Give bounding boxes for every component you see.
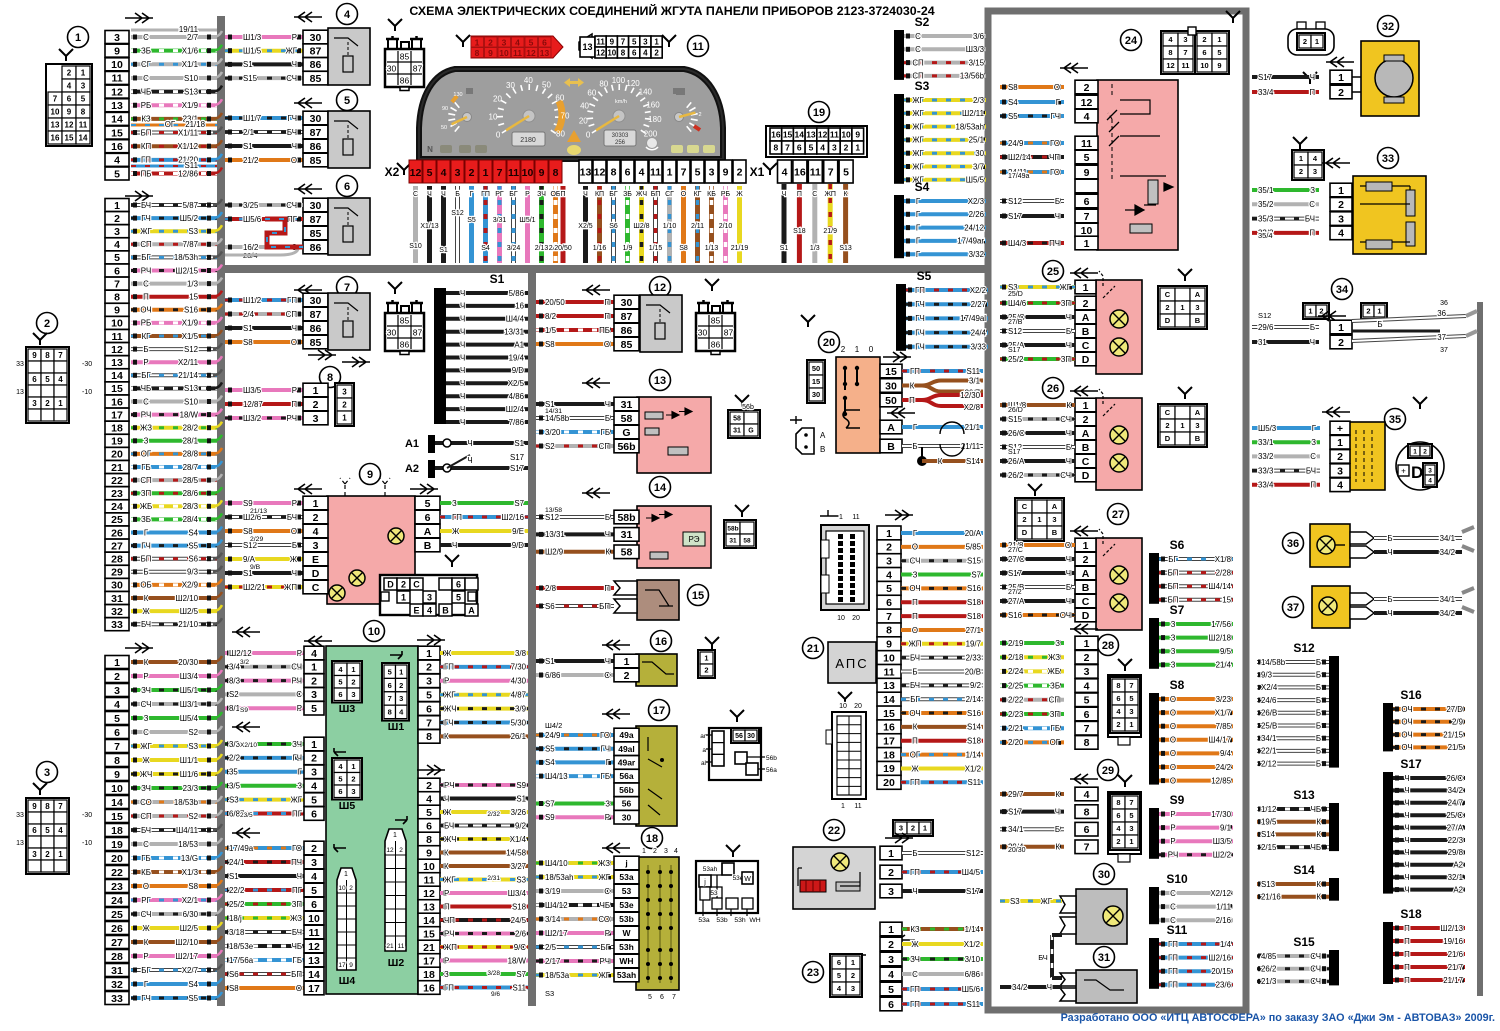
svg-text:ГБ: ГБ bbox=[1051, 724, 1060, 733]
svg-text:ЖЧ: ЖЧ bbox=[444, 704, 457, 713]
svg-text:53: 53 bbox=[710, 890, 718, 897]
svg-text:ЖГ: ЖГ bbox=[140, 742, 152, 751]
svg-text:С: С bbox=[915, 45, 921, 54]
svg-text:ЖБ: ЖБ bbox=[1048, 667, 1060, 676]
svg-text:РЧ: РЧ bbox=[291, 676, 302, 685]
svg-text:34/1: 34/1 bbox=[1261, 734, 1276, 743]
svg-text:ЖГ: ЖГ bbox=[912, 109, 924, 118]
svg-text:S13: S13 bbox=[839, 245, 852, 252]
svg-text:8: 8 bbox=[621, 48, 626, 57]
svg-text:6/86: 6/86 bbox=[965, 970, 981, 979]
svg-text:З: З bbox=[1171, 661, 1176, 670]
svg-text:S8: S8 bbox=[679, 245, 688, 252]
svg-text:2: 2 bbox=[737, 166, 743, 178]
svg-text:БЧ: БЧ bbox=[292, 928, 302, 937]
svg-text:9/D: 9/D bbox=[512, 541, 525, 550]
svg-text:БГ: БГ bbox=[141, 253, 151, 262]
svg-text:X1/7: X1/7 bbox=[1215, 708, 1231, 717]
svg-text:S16: S16 bbox=[967, 584, 982, 593]
svg-text:25/1: 25/1 bbox=[969, 136, 984, 145]
svg-text:D: D bbox=[1165, 434, 1171, 443]
svg-text:1: 1 bbox=[401, 593, 406, 603]
svg-text:21/15: 21/15 bbox=[1443, 730, 1463, 739]
svg-text:СП: СП bbox=[1049, 696, 1061, 705]
svg-text:S8: S8 bbox=[1170, 678, 1185, 692]
svg-text:17/30: 17/30 bbox=[1211, 810, 1231, 819]
svg-text:S11: S11 bbox=[967, 367, 980, 376]
svg-text:1: 1 bbox=[313, 385, 319, 397]
svg-text:58b: 58b bbox=[727, 525, 738, 532]
svg-text:2: 2 bbox=[1165, 303, 1169, 312]
svg-text:49al: 49al bbox=[618, 744, 635, 754]
svg-text:1: 1 bbox=[704, 654, 708, 663]
svg-text:2: 2 bbox=[45, 850, 50, 859]
svg-text:ГП: ГП bbox=[910, 367, 920, 376]
svg-text:КЗ: КЗ bbox=[910, 925, 920, 934]
svg-text:ОЧ: ОЧ bbox=[1401, 730, 1412, 739]
svg-text:D: D bbox=[1022, 528, 1028, 537]
svg-text:2: 2 bbox=[1084, 652, 1090, 664]
svg-text:S9: S9 bbox=[240, 707, 248, 714]
svg-text:S17: S17 bbox=[1008, 347, 1021, 354]
svg-text:15: 15 bbox=[189, 293, 198, 302]
svg-text:Ш3/4: Ш3/4 bbox=[508, 889, 527, 898]
svg-text:4/30: 4/30 bbox=[511, 677, 527, 686]
svg-text:1: 1 bbox=[654, 37, 659, 46]
svg-text:3/19: 3/19 bbox=[545, 887, 561, 896]
svg-text:1: 1 bbox=[1315, 37, 1319, 46]
svg-text:ГЧ: ГЧ bbox=[915, 328, 925, 337]
svg-text:3/18: 3/18 bbox=[229, 928, 245, 937]
svg-text:Ш4/11: Ш4/11 bbox=[176, 826, 198, 835]
svg-text:С: С bbox=[604, 887, 610, 896]
svg-text:Б: Б bbox=[605, 414, 610, 423]
svg-text:140: 140 bbox=[639, 87, 653, 96]
svg-text:-30: -30 bbox=[82, 361, 92, 368]
svg-text:20/50: 20/50 bbox=[554, 245, 572, 252]
svg-text:7: 7 bbox=[1084, 211, 1090, 223]
svg-text:11: 11 bbox=[596, 37, 605, 46]
svg-text:5: 5 bbox=[809, 143, 814, 153]
svg-text:8/2: 8/2 bbox=[545, 312, 556, 321]
svg-text:4: 4 bbox=[1084, 789, 1090, 801]
svg-text:2: 2 bbox=[1116, 837, 1120, 846]
svg-text:6: 6 bbox=[425, 512, 431, 524]
svg-text:8: 8 bbox=[1168, 48, 1172, 57]
svg-text:ГП: ГП bbox=[444, 663, 454, 672]
svg-text:Ч: Ч bbox=[583, 191, 588, 198]
svg-text:D: D bbox=[312, 568, 320, 580]
svg-text:5: 5 bbox=[338, 774, 342, 783]
svg-text:53h: 53h bbox=[619, 942, 634, 952]
svg-text:30: 30 bbox=[885, 380, 897, 392]
svg-text:-10: -10 bbox=[82, 840, 92, 847]
svg-text:13: 13 bbox=[423, 901, 435, 913]
svg-text:X1/9: X1/9 bbox=[182, 319, 199, 328]
svg-text:-10: -10 bbox=[82, 389, 92, 396]
svg-text:S14: S14 bbox=[966, 457, 981, 466]
svg-text:2: 2 bbox=[1423, 448, 1427, 455]
svg-text:3: 3 bbox=[1195, 421, 1199, 430]
svg-text:29/8: 29/8 bbox=[1448, 848, 1464, 857]
svg-text:5: 5 bbox=[632, 37, 637, 46]
svg-text:10: 10 bbox=[837, 615, 845, 622]
svg-text:З: З bbox=[1171, 647, 1176, 656]
svg-text:2: 2 bbox=[469, 167, 475, 179]
svg-text:ГБ: ГБ bbox=[601, 428, 610, 437]
svg-text:П: П bbox=[1404, 937, 1410, 946]
svg-text:СП: СП bbox=[912, 58, 924, 67]
svg-text:О: О bbox=[1170, 708, 1176, 717]
svg-text:S6: S6 bbox=[609, 223, 618, 230]
svg-text:S12: S12 bbox=[451, 210, 464, 217]
svg-text:49ar: 49ar bbox=[618, 757, 636, 767]
svg-text:3/24: 3/24 bbox=[507, 245, 521, 252]
svg-text:23/6: 23/6 bbox=[1216, 981, 1232, 990]
svg-text:al: al bbox=[701, 760, 707, 767]
svg-text:К: К bbox=[910, 381, 915, 390]
svg-text:23/5: 23/5 bbox=[240, 812, 253, 819]
svg-text:15: 15 bbox=[111, 811, 123, 823]
svg-text:О: О bbox=[1170, 763, 1176, 772]
svg-text:15: 15 bbox=[692, 590, 704, 602]
svg-text:2: 2 bbox=[851, 971, 855, 980]
svg-text:Разработано ООО «ИТЦ АВТОСФЕРА: Разработано ООО «ИТЦ АВТОСФЕРА» по заказ… bbox=[1061, 1012, 1495, 1024]
svg-text:21/6: 21/6 bbox=[1448, 950, 1464, 959]
svg-text:3/8: 3/8 bbox=[515, 649, 527, 658]
svg-text:11: 11 bbox=[423, 874, 434, 886]
svg-text:Ш5/5: Ш5/5 bbox=[966, 176, 985, 185]
svg-text:S4: S4 bbox=[188, 980, 198, 989]
svg-text:ГП: ГП bbox=[1168, 953, 1178, 962]
svg-text:2: 2 bbox=[399, 847, 403, 854]
svg-text:18/53: 18/53 bbox=[178, 840, 198, 849]
svg-text:9/5: 9/5 bbox=[1220, 647, 1232, 656]
svg-text:S2: S2 bbox=[545, 442, 555, 451]
svg-text:28: 28 bbox=[111, 951, 123, 963]
svg-text:4: 4 bbox=[1084, 680, 1090, 692]
svg-text:Ч: Ч bbox=[1404, 823, 1409, 832]
svg-text:19: 19 bbox=[813, 107, 825, 119]
svg-text:2/19: 2/19 bbox=[1008, 639, 1024, 648]
svg-text:10: 10 bbox=[841, 130, 851, 140]
svg-text:8: 8 bbox=[114, 291, 120, 303]
svg-text:5/87: 5/87 bbox=[183, 201, 198, 210]
svg-text:БП: БП bbox=[1168, 568, 1179, 577]
svg-text:3: 3 bbox=[313, 540, 319, 552]
svg-text:85: 85 bbox=[711, 316, 721, 326]
svg-text:СГ: СГ bbox=[665, 191, 674, 198]
svg-text:87: 87 bbox=[413, 64, 423, 74]
svg-text:56: 56 bbox=[735, 733, 743, 740]
svg-text:СЧ: СЧ bbox=[141, 910, 152, 919]
svg-text:Р: Р bbox=[444, 956, 449, 965]
svg-text:26/2: 26/2 bbox=[1008, 471, 1023, 480]
svg-text:33: 33 bbox=[111, 993, 123, 1005]
svg-text:21/1: 21/1 bbox=[965, 423, 980, 432]
svg-text:15: 15 bbox=[812, 377, 820, 386]
svg-text:32: 32 bbox=[111, 979, 123, 991]
svg-text:9/3: 9/3 bbox=[1261, 671, 1273, 680]
svg-text:3/14: 3/14 bbox=[545, 915, 561, 924]
svg-text:27/А: 27/А bbox=[1008, 597, 1025, 606]
svg-text:X2/9: X2/9 bbox=[182, 581, 199, 590]
svg-text:11: 11 bbox=[650, 166, 661, 178]
svg-text:S9: S9 bbox=[516, 781, 526, 790]
svg-text:3: 3 bbox=[832, 143, 837, 153]
svg-text:1: 1 bbox=[642, 848, 646, 855]
svg-text:24/9: 24/9 bbox=[545, 731, 561, 740]
svg-text:СЧ: СЧ bbox=[286, 74, 297, 83]
svg-text:ОЧ: ОЧ bbox=[1060, 611, 1071, 620]
svg-text:К: К bbox=[144, 594, 149, 603]
svg-text:34/2: 34/2 bbox=[1448, 786, 1463, 795]
svg-text:1: 1 bbox=[311, 739, 317, 751]
svg-text:S4: S4 bbox=[188, 528, 198, 537]
svg-text:4: 4 bbox=[58, 826, 63, 835]
svg-text:Ч: Ч bbox=[1404, 774, 1409, 783]
svg-text:2: 2 bbox=[1116, 720, 1120, 729]
svg-text:24/1: 24/1 bbox=[229, 858, 244, 867]
svg-text:56: 56 bbox=[622, 799, 632, 809]
svg-text:СЧ: СЧ bbox=[1310, 977, 1321, 986]
svg-text:1: 1 bbox=[1129, 837, 1133, 846]
svg-text:БЧ: БЧ bbox=[1306, 466, 1316, 475]
svg-text:ЗЧ: ЗЧ bbox=[910, 955, 920, 964]
svg-text:Б: Б bbox=[1316, 696, 1321, 705]
svg-text:30: 30 bbox=[1098, 869, 1110, 881]
svg-text:1: 1 bbox=[1083, 400, 1089, 412]
svg-text:9/2: 9/2 bbox=[515, 821, 526, 830]
svg-text:3: 3 bbox=[1337, 465, 1343, 477]
svg-text:Ж: Ж bbox=[444, 808, 452, 817]
svg-text:2/12: 2/12 bbox=[1261, 759, 1276, 768]
svg-text:2: 2 bbox=[1202, 35, 1206, 44]
svg-text:3: 3 bbox=[664, 848, 668, 855]
svg-text:27/С: 27/С bbox=[1008, 555, 1025, 564]
svg-text:27/2: 27/2 bbox=[1008, 589, 1022, 596]
svg-text:1: 1 bbox=[1037, 515, 1041, 524]
svg-text:ЖГ: ЖГ bbox=[912, 162, 924, 171]
svg-text:ЖЗ: ЖЗ bbox=[1048, 653, 1060, 662]
svg-text:24: 24 bbox=[1125, 35, 1138, 47]
svg-text:18: 18 bbox=[111, 825, 123, 837]
svg-text:14/58b: 14/58b bbox=[1261, 658, 1286, 667]
svg-text:17: 17 bbox=[653, 705, 665, 717]
svg-text:1: 1 bbox=[888, 924, 894, 936]
svg-text:30: 30 bbox=[310, 200, 322, 212]
svg-text:Б: Б bbox=[1316, 721, 1321, 730]
svg-text:ГЧ: ГЧ bbox=[287, 114, 297, 123]
svg-text:ЖП: ЖП bbox=[284, 583, 297, 592]
svg-text:21/13: 21/13 bbox=[250, 508, 267, 515]
svg-text:31: 31 bbox=[111, 593, 123, 605]
svg-text:12: 12 bbox=[111, 344, 123, 356]
svg-text:5: 5 bbox=[344, 95, 350, 107]
svg-text:3: 3 bbox=[351, 690, 355, 699]
svg-text:2: 2 bbox=[888, 939, 894, 951]
svg-text:Ш1/1: Ш1/1 bbox=[180, 756, 198, 765]
svg-text:35/2: 35/2 bbox=[1258, 200, 1273, 209]
svg-text:ЗБ: ЗБ bbox=[141, 515, 151, 524]
svg-text:56b: 56b bbox=[617, 441, 635, 453]
svg-text:Ш3/2: Ш3/2 bbox=[243, 414, 261, 423]
svg-text:2: 2 bbox=[45, 399, 50, 408]
svg-text:СХЕМА ЭЛЕКТРИЧЕСКИХ СОЕДИНЕНИЙ: СХЕМА ЭЛЕКТРИЧЕСКИХ СОЕДИНЕНИЙ ЖГУТА ПАН… bbox=[409, 3, 934, 18]
svg-text:Ч: Ч bbox=[292, 569, 297, 578]
svg-text:5: 5 bbox=[338, 677, 342, 686]
svg-text:6: 6 bbox=[114, 727, 120, 739]
svg-text:35: 35 bbox=[1389, 414, 1401, 426]
svg-text:9: 9 bbox=[32, 351, 37, 360]
svg-text:ГО: ГО bbox=[1050, 139, 1060, 148]
svg-text:Ч: Ч bbox=[1404, 811, 1409, 820]
svg-text:Ш4/2: Ш4/2 bbox=[545, 721, 562, 730]
svg-text:Ш2/13: Ш2/13 bbox=[1440, 924, 1463, 933]
svg-text:33: 33 bbox=[16, 361, 24, 368]
svg-text:7: 7 bbox=[1183, 48, 1187, 57]
svg-text:Ч: Ч bbox=[292, 324, 297, 333]
svg-text:ЧП: ЧП bbox=[1049, 153, 1060, 162]
svg-text:5: 5 bbox=[311, 885, 317, 897]
svg-text:2/16: 2/16 bbox=[1216, 916, 1232, 925]
svg-text:ГБ: ГБ bbox=[293, 956, 302, 965]
svg-text:13: 13 bbox=[582, 42, 592, 52]
svg-text:ЖЧ: ЖЧ bbox=[636, 191, 647, 198]
svg-text:28: 28 bbox=[111, 553, 123, 565]
svg-text:87: 87 bbox=[724, 328, 734, 338]
svg-text:21/16: 21/16 bbox=[1261, 893, 1281, 902]
svg-text:3: 3 bbox=[455, 167, 461, 179]
svg-text:7: 7 bbox=[681, 166, 687, 178]
svg-text:19/4: 19/4 bbox=[509, 353, 525, 362]
svg-text:К: К bbox=[144, 658, 149, 667]
svg-text:85: 85 bbox=[400, 316, 410, 326]
svg-text:S6: S6 bbox=[545, 602, 555, 611]
svg-text:30: 30 bbox=[622, 812, 632, 822]
svg-text:1/13: 1/13 bbox=[705, 245, 719, 252]
svg-text:X1/13: X1/13 bbox=[420, 223, 438, 230]
svg-text:А2: А2 bbox=[1453, 885, 1463, 894]
svg-text:Ч: Ч bbox=[605, 530, 610, 539]
svg-text:6: 6 bbox=[67, 94, 72, 103]
svg-text:C: C bbox=[413, 580, 420, 590]
svg-text:10: 10 bbox=[499, 48, 509, 58]
svg-text:1: 1 bbox=[855, 345, 860, 354]
svg-text:Ч: Ч bbox=[460, 366, 465, 375]
svg-text:12: 12 bbox=[423, 888, 435, 900]
svg-text:4: 4 bbox=[643, 48, 648, 57]
svg-text:Б: Б bbox=[912, 849, 917, 858]
svg-text:35/3: 35/3 bbox=[1258, 214, 1274, 223]
svg-text:ОЧ: ОЧ bbox=[1401, 718, 1412, 727]
svg-text:К: К bbox=[444, 848, 449, 857]
svg-text:9: 9 bbox=[1217, 61, 1221, 70]
svg-text:ЖГ: ЖГ bbox=[598, 971, 610, 980]
svg-text:X1/2: X1/2 bbox=[964, 940, 980, 949]
svg-text:Ч: Ч bbox=[912, 887, 917, 896]
svg-text:С: С bbox=[1170, 902, 1176, 911]
svg-text:60: 60 bbox=[555, 93, 564, 102]
svg-text:S7: S7 bbox=[971, 570, 981, 579]
svg-text:ЖГ: ЖГ bbox=[598, 873, 610, 882]
svg-text:40: 40 bbox=[580, 101, 589, 110]
svg-text:B: B bbox=[442, 606, 449, 616]
svg-text:17: 17 bbox=[308, 983, 320, 995]
svg-text:37: 37 bbox=[1440, 347, 1448, 354]
svg-text:6/30: 6/30 bbox=[183, 910, 199, 919]
svg-text:4: 4 bbox=[886, 569, 892, 581]
svg-text:100: 100 bbox=[612, 76, 626, 85]
svg-text:5: 5 bbox=[843, 166, 849, 178]
svg-text:3/4: 3/4 bbox=[229, 663, 241, 672]
svg-text:X1/9: X1/9 bbox=[182, 101, 199, 110]
svg-text:4: 4 bbox=[114, 699, 120, 711]
svg-text:19/11: 19/11 bbox=[179, 25, 198, 34]
svg-text:1/9: 1/9 bbox=[623, 245, 633, 252]
svg-text:0: 0 bbox=[586, 131, 591, 140]
svg-text:20: 20 bbox=[883, 777, 895, 789]
svg-text:Ж: Ж bbox=[736, 191, 743, 198]
svg-text:6: 6 bbox=[388, 681, 392, 690]
svg-text:56a: 56a bbox=[619, 771, 633, 781]
svg-text:5: 5 bbox=[426, 689, 432, 701]
svg-text:S10: S10 bbox=[409, 243, 422, 250]
svg-text:А: А bbox=[1082, 312, 1090, 324]
svg-text:3/20: 3/20 bbox=[545, 428, 561, 437]
svg-text:4: 4 bbox=[426, 793, 432, 805]
svg-text:18/W: 18/W bbox=[180, 410, 199, 419]
svg-text:20/А: 20/А bbox=[965, 529, 982, 538]
svg-text:S12: S12 bbox=[184, 345, 198, 354]
svg-text:А1: А1 bbox=[405, 438, 419, 450]
svg-text:2/25: 2/25 bbox=[1008, 681, 1024, 690]
svg-text:2/24: 2/24 bbox=[1008, 667, 1024, 676]
svg-text:18: 18 bbox=[111, 422, 123, 434]
svg-text:S8: S8 bbox=[188, 882, 198, 891]
svg-text:В: В bbox=[1195, 434, 1201, 443]
svg-text:Ш2/18: Ш2/18 bbox=[1208, 633, 1231, 642]
svg-text:12: 12 bbox=[308, 941, 320, 953]
svg-text:4/86: 4/86 bbox=[509, 392, 525, 401]
svg-text:Ч: Ч bbox=[1387, 609, 1392, 618]
svg-text:32/1: 32/1 bbox=[1448, 873, 1463, 882]
svg-text:5: 5 bbox=[1084, 695, 1090, 707]
svg-text:Г: Г bbox=[913, 529, 918, 538]
svg-text:1: 1 bbox=[58, 399, 63, 408]
svg-text:ЖЗ: ЖЗ bbox=[140, 424, 152, 433]
svg-text:10: 10 bbox=[607, 48, 616, 57]
svg-text:В: В bbox=[1082, 326, 1090, 338]
svg-text:E: E bbox=[413, 606, 419, 616]
svg-text:X1/5: X1/5 bbox=[182, 332, 199, 341]
svg-text:П: П bbox=[143, 293, 149, 302]
svg-text:КБ: КБ bbox=[141, 868, 151, 877]
svg-text:3/5: 3/5 bbox=[229, 782, 241, 791]
svg-text:1: 1 bbox=[351, 762, 355, 771]
svg-text:30: 30 bbox=[111, 580, 123, 592]
svg-text:4: 4 bbox=[313, 526, 319, 538]
svg-text:S13: S13 bbox=[184, 384, 199, 393]
svg-text:ЗБ: ЗБ bbox=[623, 191, 632, 198]
svg-text:З: З bbox=[452, 499, 457, 508]
svg-text:А: А bbox=[1195, 408, 1201, 417]
svg-text:Б: Б bbox=[1316, 734, 1321, 743]
svg-text:1: 1 bbox=[1338, 185, 1344, 197]
svg-text:7: 7 bbox=[785, 143, 790, 153]
svg-text:7/86: 7/86 bbox=[509, 418, 525, 427]
svg-text:34/2: 34/2 bbox=[1440, 609, 1455, 618]
